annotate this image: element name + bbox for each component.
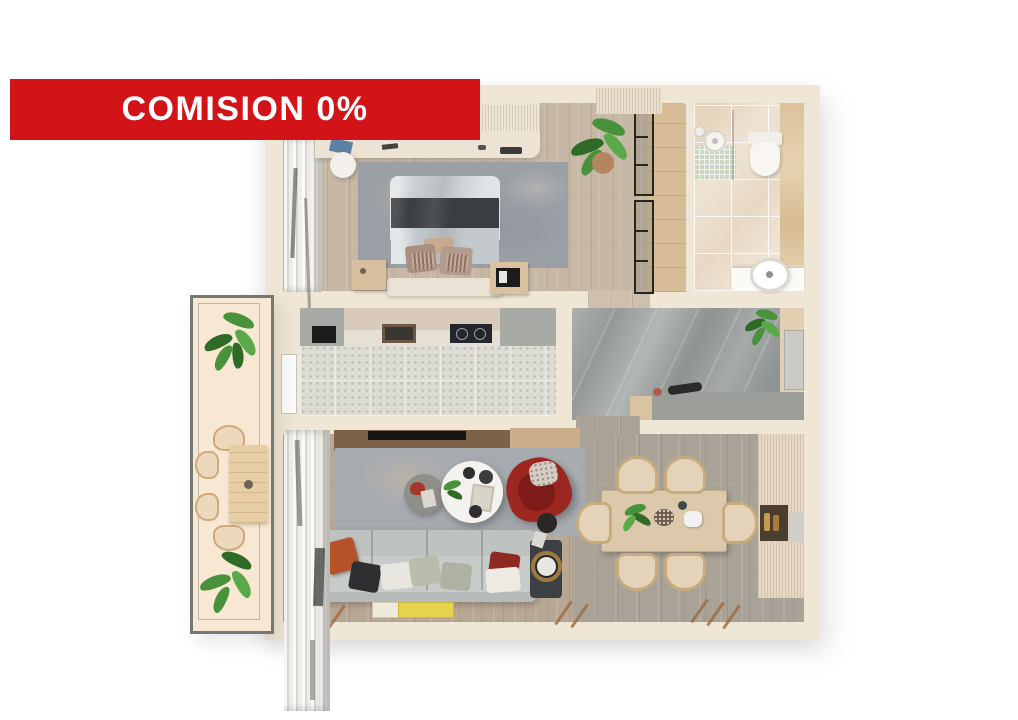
leaf-decor — [446, 488, 463, 501]
shower-head-center — [712, 138, 718, 144]
bathroom-marble-wall — [780, 103, 804, 265]
balcony-plant-top — [201, 306, 263, 380]
bottle-decor — [764, 513, 770, 531]
small-decor-item — [478, 145, 486, 150]
living-curtain — [284, 430, 330, 711]
pillow-black — [348, 561, 382, 594]
dining-chair — [576, 502, 612, 544]
sideboard-light-wood — [510, 428, 580, 450]
balcony — [190, 295, 274, 634]
floorplan-image: COMISION 0% — [0, 0, 1018, 720]
dining-chair — [616, 553, 658, 591]
toilet — [748, 132, 782, 176]
doormat-white — [372, 602, 400, 618]
doormat-yellow — [398, 602, 454, 618]
sofa-seam — [481, 530, 483, 590]
ceiling-vent — [596, 88, 662, 114]
apartment-outline — [265, 85, 820, 640]
pillow-sage — [408, 555, 442, 587]
sideboard-tray — [368, 431, 466, 440]
floor-vase — [537, 513, 557, 533]
hall-plant — [742, 306, 782, 352]
nightstand-right — [490, 262, 528, 294]
scissors-decor — [382, 143, 398, 150]
bedroom-stool — [330, 152, 356, 178]
promo-banner: COMISION 0% — [10, 79, 480, 140]
shelf-line — [636, 136, 648, 138]
pillow-sage — [440, 562, 473, 592]
leaf-decor — [621, 513, 638, 532]
balcony-chair — [195, 451, 219, 479]
dressing-plant — [566, 112, 638, 182]
balcony-table — [229, 445, 267, 523]
plate-decor — [469, 505, 482, 518]
oven — [382, 324, 416, 343]
nightstand-left — [352, 260, 386, 290]
media-niche — [760, 505, 788, 541]
shower-head — [704, 130, 726, 152]
bottle-decor — [773, 515, 779, 531]
dining-chair — [664, 456, 706, 494]
leaf-decor — [220, 548, 254, 572]
console-flower — [653, 388, 662, 396]
pillow-white — [485, 567, 521, 594]
burner-icon — [456, 328, 468, 340]
shower-glass — [732, 110, 734, 180]
faucet — [766, 271, 773, 278]
curtain-fold — [304, 198, 311, 308]
pebble-bowl-decor — [654, 509, 674, 526]
bed-headboard — [387, 278, 503, 296]
hall-console — [652, 392, 804, 420]
balcony-plant-bottom — [197, 542, 261, 620]
cup-decor — [678, 501, 687, 510]
bedroom-curtain — [284, 138, 322, 292]
media-gray-panel — [788, 512, 804, 542]
coffee-table — [441, 461, 503, 523]
shelf-line — [636, 164, 648, 166]
table-knob — [244, 480, 253, 489]
curtain-fold — [295, 440, 303, 526]
bed — [390, 176, 500, 296]
cooktop — [450, 324, 492, 343]
dining-chair — [664, 553, 706, 591]
kitchen-cabinet-right — [500, 308, 556, 346]
sofa-front-edge — [316, 592, 536, 602]
curtain-fold — [290, 168, 297, 258]
bed-pillow-striped — [445, 253, 469, 273]
wardrobe-shelf-frame — [634, 108, 654, 196]
dining-chair — [616, 456, 658, 494]
magazine-decor — [420, 489, 436, 508]
dining-table — [601, 490, 727, 552]
armchair-pillow — [528, 459, 560, 487]
bronze-round-table — [531, 551, 562, 582]
bed-blanket — [391, 198, 499, 230]
toilet-bowl — [750, 142, 780, 176]
dish-decor — [684, 511, 702, 527]
burner-icon — [474, 328, 486, 340]
shelf-line — [636, 230, 648, 232]
leaf-decor — [210, 584, 232, 614]
wardrobe-shelf-frame — [634, 200, 654, 294]
curtain-fold — [313, 548, 325, 606]
small-decor-item — [360, 268, 366, 274]
plant-pot — [592, 152, 614, 174]
leaf-decor — [222, 309, 256, 331]
entry-door — [784, 330, 804, 390]
book-label — [499, 271, 507, 283]
sink-basin — [750, 258, 790, 292]
dining-chair — [722, 502, 758, 544]
media-unit — [758, 434, 804, 598]
bed-pillow-striped — [411, 251, 434, 271]
leaf-decor — [229, 568, 254, 600]
balcony-chair — [195, 493, 219, 521]
shower-valve — [694, 126, 705, 137]
plate-decor — [463, 467, 475, 479]
small-decor-item — [500, 147, 522, 154]
side-coffee-table — [404, 474, 444, 514]
plate-decor — [479, 470, 493, 484]
kitchen-window — [281, 354, 297, 414]
curtain-fold — [310, 640, 315, 700]
promo-banner-label: COMISION 0% — [122, 90, 369, 129]
coffee-machine — [312, 326, 336, 343]
shelf-line — [636, 260, 648, 262]
